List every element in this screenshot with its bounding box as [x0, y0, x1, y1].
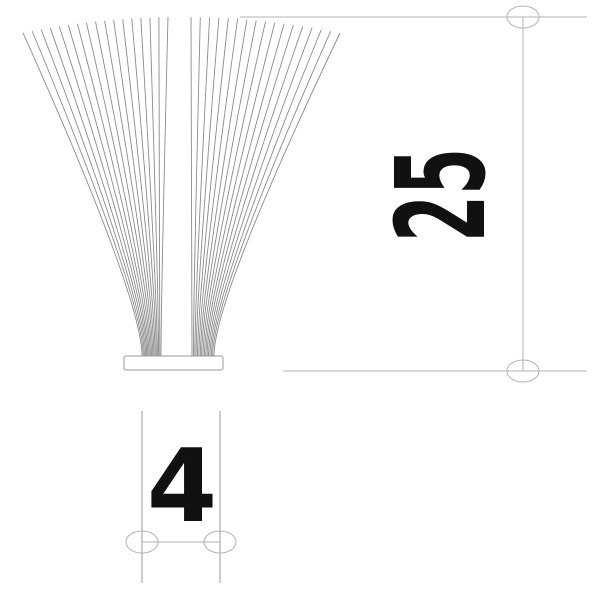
- height-dimension-label: 25: [371, 148, 514, 242]
- brush-wire: [50, 28, 145, 356]
- brush-wire: [209, 26, 303, 356]
- height-dimension: 25: [240, 6, 587, 382]
- brush-wire: [206, 24, 284, 356]
- wire-fan: [23, 17, 340, 356]
- brush-wire: [159, 17, 160, 356]
- brush-wire: [193, 17, 200, 356]
- brush-wire: [211, 30, 321, 357]
- brush-wire: [191, 17, 192, 356]
- technical-drawing-canvas: 25 4: [0, 0, 600, 593]
- brush-wire: [32, 31, 143, 356]
- width-dimension-label: 4: [147, 427, 217, 545]
- brush-wire: [86, 23, 150, 356]
- width-dimension: 4: [126, 411, 236, 583]
- drawing-page: 25 4: [0, 0, 600, 593]
- brush-wire: [161, 17, 168, 356]
- brush-wire: [213, 31, 331, 356]
- brush-base-rect: [124, 356, 223, 370]
- brush-wire: [59, 26, 147, 356]
